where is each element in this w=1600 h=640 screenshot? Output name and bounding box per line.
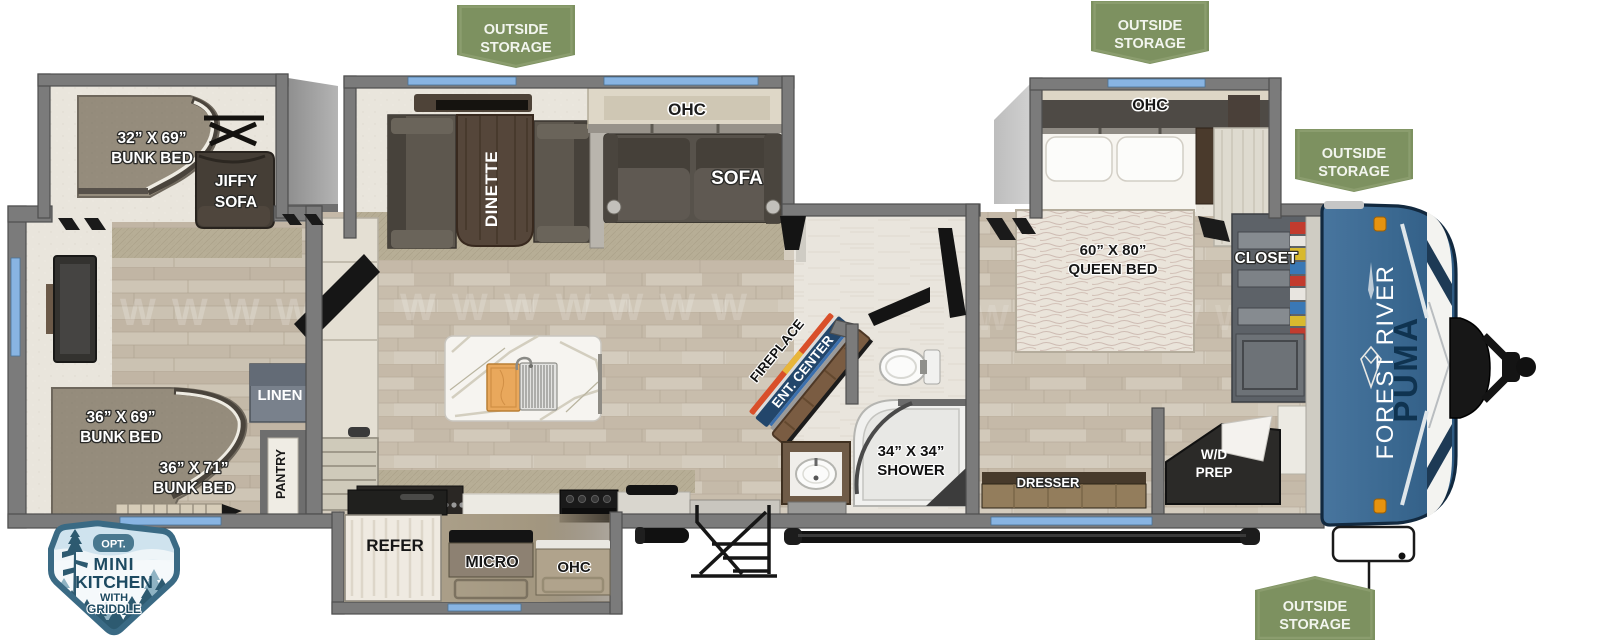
svg-text:DRESSER: DRESSER [1017,475,1080,490]
svg-text:OUTSIDE: OUTSIDE [1283,599,1348,615]
svg-text:36” X 71”: 36” X 71” [160,460,229,477]
svg-text:BUNK BED: BUNK BED [111,150,193,167]
svg-text:SHOWER: SHOWER [877,462,945,479]
svg-text:REFER: REFER [366,536,424,555]
svg-text:SOFA: SOFA [215,194,257,211]
svg-text:OUTSIDE: OUTSIDE [484,22,549,38]
svg-text:PREP: PREP [1196,465,1233,480]
svg-text:WWWW: WWWW [120,292,327,334]
svg-text:32” X 69”: 32” X 69” [118,130,187,147]
svg-text:OHC: OHC [1132,97,1168,114]
svg-text:SOFA: SOFA [711,168,763,189]
svg-text:DINETTE: DINETTE [482,151,501,227]
svg-text:GRIDDLE: GRIDDLE [87,602,141,616]
svg-text:OPT.: OPT. [101,539,125,551]
svg-text:34” X 34”: 34” X 34” [878,443,945,460]
svg-text:STORAGE: STORAGE [1318,164,1390,180]
svg-text:QUEEN BED: QUEEN BED [1068,261,1157,278]
svg-text:36” X 69”: 36” X 69” [87,409,156,426]
svg-text:W/D: W/D [1201,447,1227,462]
svg-text:PANTRY: PANTRY [274,448,288,499]
svg-text:WWWWWWW: WWWWWWW [400,287,763,329]
svg-text:OHC: OHC [557,559,591,576]
svg-text:STORAGE: STORAGE [1114,36,1186,52]
svg-text:CLOSET: CLOSET [1235,250,1298,267]
svg-text:MINI: MINI [94,554,135,574]
svg-text:PUMA: PUMA [1387,315,1424,422]
svg-text:MICRO: MICRO [465,554,518,571]
svg-text:KITCHEN: KITCHEN [75,572,153,592]
svg-text:BUNK BED: BUNK BED [80,429,162,446]
svg-text:60” X 80”: 60” X 80” [1080,242,1147,259]
svg-text:BUNK BED: BUNK BED [153,480,235,497]
svg-text:OUTSIDE: OUTSIDE [1118,18,1183,34]
svg-text:STORAGE: STORAGE [1279,617,1351,633]
svg-text:LINEN: LINEN [258,387,303,404]
svg-text:OUTSIDE: OUTSIDE [1322,146,1387,162]
svg-text:STORAGE: STORAGE [480,40,552,56]
svg-text:JIFFY: JIFFY [215,173,258,190]
svg-text:OHC: OHC [668,100,706,119]
